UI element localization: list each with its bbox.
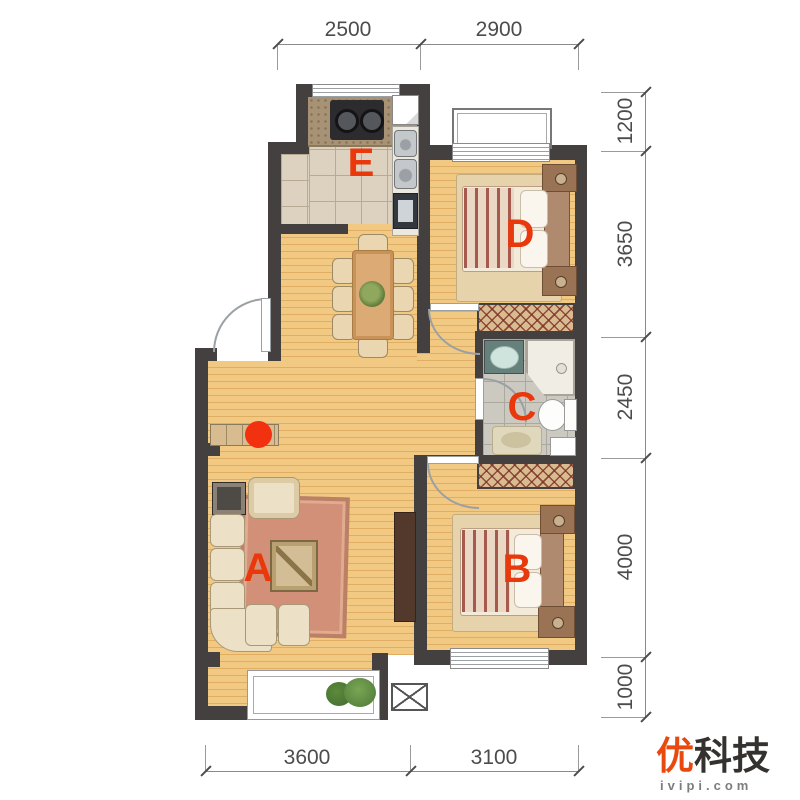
basin-bowl: [490, 346, 519, 369]
sofa-cushion: [210, 514, 245, 547]
oven-icon: [393, 193, 418, 229]
sofa-cushion: [278, 604, 310, 646]
nightstand: [542, 266, 577, 296]
fridge-icon: [392, 95, 419, 125]
nightstand: [540, 505, 575, 534]
bedroom-b-door-leaf: [427, 456, 479, 464]
bathroom-corner-box: [550, 437, 576, 456]
sofa-seats: [245, 604, 309, 646]
kitchen-sink-icon: [394, 130, 417, 157]
dim-ext: [420, 44, 421, 70]
brand-accent-char: 优: [656, 736, 694, 778]
dim-top-0: 2500: [308, 18, 388, 42]
nightstand: [542, 164, 577, 192]
brand-name: 优科技: [656, 738, 770, 776]
toilet-tank: [564, 399, 577, 431]
dim-ext: [277, 44, 278, 70]
bedroom-b-headboard: [540, 530, 564, 612]
west-wall-stub-2: [206, 652, 220, 667]
bath-mat: [492, 426, 542, 455]
dim-right-0: 1200: [614, 81, 636, 161]
bath-mat-inner: [501, 432, 531, 448]
sofa-cushion: [245, 604, 277, 646]
floor-plant-icon: [344, 678, 376, 707]
shower-drain: [556, 363, 567, 374]
side-table: [212, 482, 246, 515]
dim-right-1: 3650: [614, 204, 636, 284]
brand-rest: 科技: [694, 736, 770, 778]
bedroom-d-window: [452, 143, 550, 162]
dim-bottom-1: 3100: [454, 746, 534, 770]
stove-icon: [330, 100, 384, 140]
kitchen-sink-icon-2: [394, 159, 417, 189]
dim-right-3: 4000: [614, 517, 636, 597]
bedroom-b-south-wall-right: [545, 650, 587, 665]
bedroom-d-door-leaf: [430, 303, 479, 311]
room-label-bedroom-d: D: [498, 212, 542, 256]
dim-bottom-0: 3600: [267, 746, 347, 770]
entry-door-leaf: [261, 298, 271, 352]
burner-left: [335, 109, 359, 133]
bathroom-door-leaf: [475, 378, 484, 420]
oven-door: [398, 200, 413, 222]
dim-ext: [601, 458, 646, 459]
dim-ext: [601, 337, 646, 338]
dim-right-2: 2450: [614, 357, 636, 437]
bedroom-b-wardrobe: [477, 462, 575, 489]
washbasin-icon: [484, 340, 524, 374]
burner-right: [360, 109, 384, 133]
kitchen-bottom-wall: [281, 224, 348, 234]
room-label-living: A: [236, 546, 280, 590]
floorplan-canvas: A B C D E 2500 2900 1200 3650 2450 4000 …: [0, 0, 800, 800]
tv-cabinet: [394, 512, 416, 622]
kitchen-floor-ext: [281, 154, 309, 224]
dim-top-1: 2900: [459, 18, 539, 42]
dim-line-bottom: [205, 771, 578, 772]
dim-right-4: 1000: [614, 647, 636, 727]
armchair: [248, 477, 300, 519]
brand-site-url: ivipi.com: [656, 779, 770, 792]
south-wall-left: [195, 706, 252, 720]
nightstand: [538, 606, 575, 638]
watermark-logo: 优科技 ivipi.com: [656, 738, 770, 792]
entry-door-arc: [213, 298, 267, 352]
room-label-kitchen: E: [339, 141, 383, 185]
dim-ext: [578, 44, 579, 70]
room-label-bathroom: C: [500, 385, 544, 429]
dim-line-right: [645, 92, 646, 717]
red-marker-dot: [245, 421, 272, 448]
room-label-bedroom-b: B: [495, 547, 539, 591]
bedroom-d-wardrobe: [477, 303, 575, 333]
dim-line-top: [277, 44, 578, 45]
table-plant-icon: [359, 281, 385, 307]
bedroom-b-window: [450, 648, 549, 669]
flue-shaft-icon: [391, 683, 428, 711]
